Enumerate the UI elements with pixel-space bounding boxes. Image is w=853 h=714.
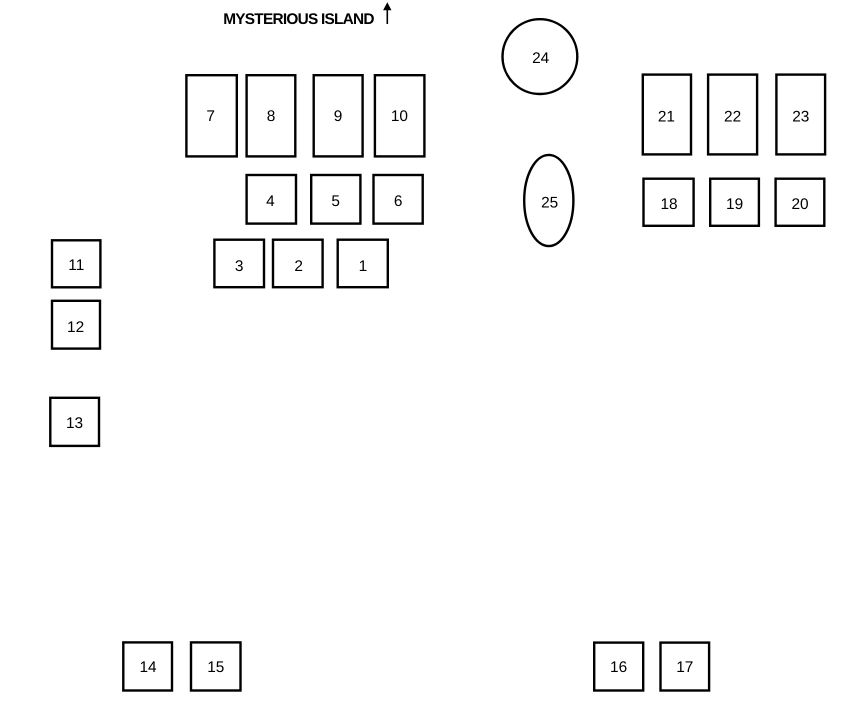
svg-text:15: 15 [207, 659, 224, 676]
svg-text:1: 1 [359, 258, 368, 275]
svg-text:11: 11 [68, 257, 84, 274]
svg-text:21: 21 [658, 108, 675, 125]
svg-text:MYSTERIOUS ISLAND: MYSTERIOUS ISLAND [223, 11, 374, 28]
svg-text:3: 3 [235, 258, 244, 275]
svg-text:19: 19 [726, 196, 743, 213]
svg-text:16: 16 [610, 659, 627, 676]
svg-text:17: 17 [676, 659, 693, 676]
svg-text:10: 10 [391, 108, 408, 125]
svg-text:25: 25 [541, 195, 558, 212]
svg-text:5: 5 [331, 193, 340, 210]
svg-text:14: 14 [139, 659, 157, 676]
svg-text:8: 8 [267, 108, 276, 125]
svg-text:4: 4 [266, 193, 275, 210]
svg-text:24: 24 [532, 50, 550, 67]
svg-text:13: 13 [66, 415, 83, 432]
svg-text:6: 6 [394, 193, 403, 210]
svg-text:12: 12 [67, 319, 84, 336]
svg-text:9: 9 [334, 108, 343, 125]
svg-text:7: 7 [206, 108, 215, 125]
svg-text:20: 20 [791, 196, 808, 213]
svg-text:18: 18 [660, 196, 677, 213]
svg-text:22: 22 [724, 108, 741, 125]
svg-text:23: 23 [792, 108, 809, 125]
svg-text:2: 2 [294, 258, 303, 275]
